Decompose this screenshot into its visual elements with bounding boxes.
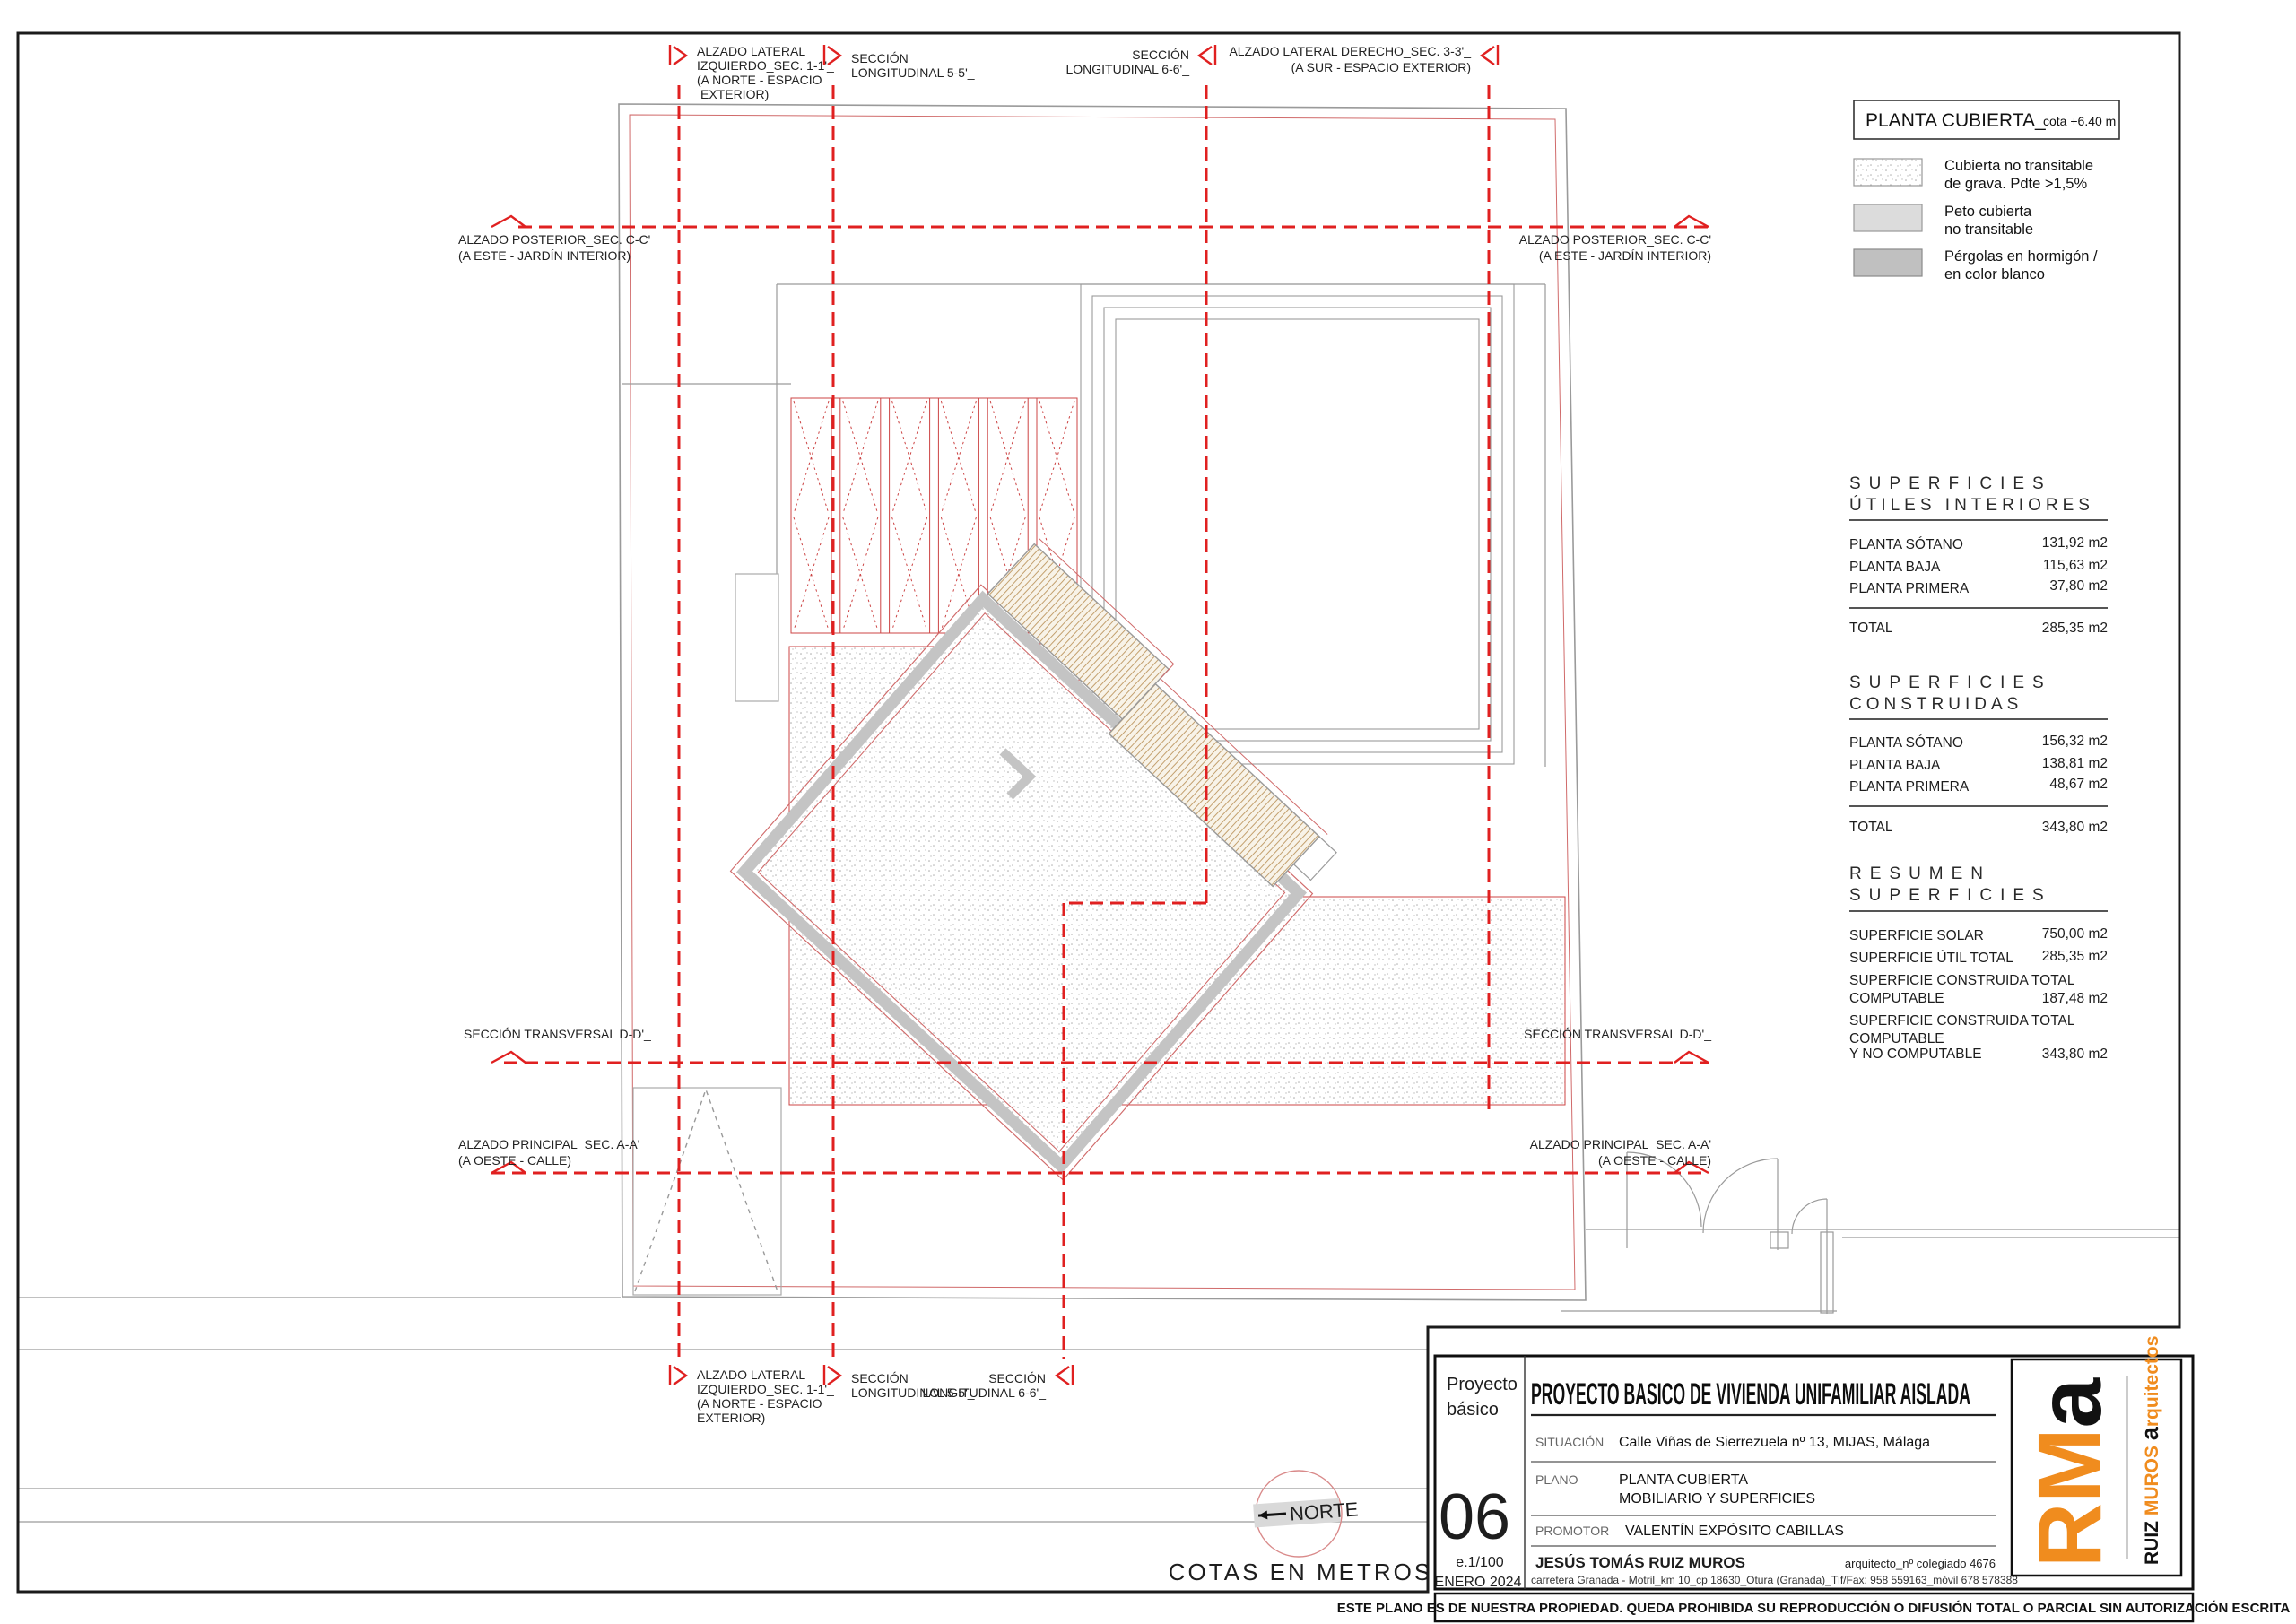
roof-plan-sheet: ALZADO LATERAL IZQUIERDO_SEC. 1-1'_ (A N… <box>0 0 2296 1624</box>
plano-value-1: PLANTA CUBIERTA <box>1619 1472 1748 1488</box>
legend-title: PLANTA CUBIERTA_ <box>1865 110 2046 131</box>
situacion-value: Calle Viñas de Sierrezuela nº 13, MIJAS,… <box>1619 1435 1930 1450</box>
svg-text:TOTAL: TOTAL <box>1849 621 1893 636</box>
svg-text:PLANTA PRIMERA: PLANTA PRIMERA <box>1849 581 1970 596</box>
label-posterior-left: ALZADO POSTERIOR_SEC. C-C' <box>458 232 650 247</box>
sheet-scale: e.1/100 <box>1456 1555 1503 1570</box>
table-superficies-construidas: SUPERFICIES CONSTRUIDAS PLANTA SÓTANO 15… <box>1849 673 2108 835</box>
architect-address: carretera Granada - Motril_km 10_cp 1863… <box>1531 1574 2018 1586</box>
svg-text:SUPERFICIES: SUPERFICIES <box>1849 673 2052 692</box>
svg-text:285,35 m2: 285,35 m2 <box>2042 949 2108 964</box>
svg-text:CONSTRUIDAS: CONSTRUIDAS <box>1849 695 2022 714</box>
svg-text:37,80 m2: 37,80 m2 <box>2049 578 2108 594</box>
architect-name: JESÚS TOMÁS RUIZ MUROS <box>1535 1554 1745 1571</box>
svg-text:131,92 m2: 131,92 m2 <box>2042 535 2108 551</box>
svg-text:115,63 m2: 115,63 m2 <box>2043 558 2108 573</box>
svg-text:Cubierta no transitable: Cubierta no transitable <box>1944 158 2093 174</box>
label-long6-top: SECCIÓN <box>1132 48 1189 62</box>
svg-text:187,48 m2: 187,48 m2 <box>2042 991 2108 1006</box>
architect-number: arquitecto_nº colegiado 4676 <box>1845 1557 1996 1570</box>
label-lateral-izq-top: ALZADO LATERAL <box>697 44 805 58</box>
svg-text:48,67 m2: 48,67 m2 <box>2049 777 2108 792</box>
svg-text:SUPERFICIE SOLAR: SUPERFICIE SOLAR <box>1849 928 1984 943</box>
legend: PLANTA CUBIERTA_ cota +6.40 m Cubierta n… <box>1854 100 2119 282</box>
project-type-line1: Proyecto <box>1447 1375 1518 1394</box>
svg-text:(A SUR - ESPACIO EXTERIOR): (A SUR - ESPACIO EXTERIOR) <box>1291 60 1471 74</box>
plano-label: PLANO <box>1535 1472 1578 1487</box>
svg-text:ÚTILES INTERIORES: ÚTILES INTERIORES <box>1849 495 2094 515</box>
plan-canvas: ALZADO LATERAL IZQUIERDO_SEC. 1-1'_ (A N… <box>0 0 2296 1624</box>
svg-text:156,32 m2: 156,32 m2 <box>2042 734 2108 749</box>
svg-text:750,00 m2: 750,00 m2 <box>2042 926 2108 942</box>
label-principal-left: ALZADO PRINCIPAL_SEC. A-A' <box>458 1137 639 1151</box>
label-long6-bottom: SECCIÓN <box>988 1371 1046 1385</box>
label-lateral-izq-bottom: ALZADO LATERAL <box>697 1368 805 1382</box>
svg-text:(A ESTE - JARDÍN INTERIOR): (A ESTE - JARDÍN INTERIOR) <box>1539 248 1711 263</box>
svg-text:PLANTA SÓTANO: PLANTA SÓTANO <box>1849 537 1963 552</box>
copyright-text: ESTE PLANO ES DE NUESTRA PROPIEDAD. QUED… <box>1337 1600 2291 1616</box>
svg-text:PLANTA BAJA: PLANTA BAJA <box>1849 758 1941 773</box>
north-label: NORTE <box>1289 1498 1359 1524</box>
label-lateral-der-top: ALZADO LATERAL DERECHO_SEC. 3-3'_ <box>1229 44 1471 58</box>
title-block: Proyecto básico 06 e.1/100 ENERO 2024 PR… <box>1337 1336 2291 1621</box>
skylight <box>735 574 778 701</box>
svg-text:TOTAL: TOTAL <box>1849 820 1893 835</box>
project-type-line2: básico <box>1447 1400 1499 1420</box>
logo-rm: RM <box>2020 1428 2120 1568</box>
ramp <box>633 1088 781 1295</box>
north-compass: NORTE <box>1253 1471 1359 1557</box>
legend-subtitle: cota +6.40 m <box>2043 114 2116 128</box>
svg-text:343,80 m2: 343,80 m2 <box>2042 820 2108 835</box>
entrance-gates <box>1627 1152 1833 1314</box>
svg-text:SUPERFICIE ÚTIL TOTAL: SUPERFICIE ÚTIL TOTAL <box>1849 951 2013 966</box>
svg-text:en color blanco: en color blanco <box>1944 266 2045 282</box>
situacion-label: SITUACIÓN <box>1535 1435 1604 1449</box>
svg-text:SUPERFICIE CONSTRUIDA TOTAL: SUPERFICIE CONSTRUIDA TOTAL <box>1849 973 2075 988</box>
studio-logo: RMa RUIZ MUROS arquitectos <box>2012 1336 2181 1576</box>
svg-text:IZQUIERDO_SEC. 1-1'_: IZQUIERDO_SEC. 1-1'_ <box>697 1382 834 1396</box>
svg-text:de grava. Pdte >1,5%: de grava. Pdte >1,5% <box>1944 176 2087 192</box>
svg-text:RMa: RMa <box>2020 1376 2120 1568</box>
svg-text:PLANTA SÓTANO: PLANTA SÓTANO <box>1849 735 1963 751</box>
plano-value-2: MOBILIARIO Y SUPERFICIES <box>1619 1491 1815 1507</box>
sheet-date: ENERO 2024 <box>1435 1575 1522 1590</box>
svg-text:Y NO COMPUTABLE: Y NO COMPUTABLE <box>1849 1046 1982 1062</box>
legend-swatch-pergola <box>1854 249 1922 276</box>
svg-text:PLANTA BAJA: PLANTA BAJA <box>1849 560 1941 575</box>
label-long5-top: SECCIÓN <box>851 51 909 65</box>
svg-text:Pérgolas en hormigón /: Pérgolas en hormigón / <box>1944 248 2098 265</box>
label-transversal-left: SECCIÓN TRANSVERSAL D-D'_ <box>464 1027 651 1041</box>
table-superficies-utiles: SUPERFICIES ÚTILES INTERIORES PLANTA SÓT… <box>1849 474 2108 636</box>
svg-text:COMPUTABLE: COMPUTABLE <box>1849 1031 1944 1046</box>
svg-text:(A OESTE - CALLE): (A OESTE - CALLE) <box>1598 1153 1711 1168</box>
svg-text:IZQUIERDO_SEC. 1-1'_: IZQUIERDO_SEC. 1-1'_ <box>697 58 834 73</box>
table-resumen-superficies: RESUMEN SUPERFICIES SUPERFICIE SOLAR 750… <box>1849 864 2108 1062</box>
svg-text:343,80 m2: 343,80 m2 <box>2042 1046 2108 1062</box>
svg-text:EXTERIOR): EXTERIOR) <box>700 87 769 101</box>
svg-text:SUPERFICIE CONSTRUIDA TOTAL: SUPERFICIE CONSTRUIDA TOTAL <box>1849 1013 2075 1029</box>
label-principal-right: ALZADO PRINCIPAL_SEC. A-A' <box>1530 1137 1711 1151</box>
svg-text:LONGITUDINAL 6-6'_: LONGITUDINAL 6-6'_ <box>1065 62 1189 76</box>
sheet-number: 06 <box>1439 1481 1510 1553</box>
svg-text:SUPERFICIES: SUPERFICIES <box>1849 886 2052 905</box>
svg-text:285,35 m2: 285,35 m2 <box>2042 621 2108 636</box>
svg-text:138,81 m2: 138,81 m2 <box>2042 756 2108 771</box>
svg-text:EXTERIOR): EXTERIOR) <box>697 1411 765 1425</box>
label-transversal-right: SECCIÓN TRANSVERSAL D-D'_ <box>1524 1027 1711 1041</box>
svg-text:(A OESTE - CALLE): (A OESTE - CALLE) <box>458 1153 571 1168</box>
svg-text:(A NORTE - ESPACIO: (A NORTE - ESPACIO <box>697 73 822 87</box>
svg-text:(A NORTE - ESPACIO: (A NORTE - ESPACIO <box>697 1396 822 1411</box>
legend-swatch-gravel <box>1854 159 1922 186</box>
promotor-label: PROMOTOR <box>1535 1524 1609 1538</box>
svg-text:LONGITUDINAL 6-6'_: LONGITUDINAL 6-6'_ <box>922 1385 1046 1400</box>
svg-text:no transitable: no transitable <box>1944 221 2033 238</box>
svg-text:PLANTA PRIMERA: PLANTA PRIMERA <box>1849 779 1970 795</box>
logo-a: a <box>2020 1376 2120 1428</box>
legend-swatch-peto <box>1854 204 1922 231</box>
label-long5-bottom: SECCIÓN <box>851 1371 909 1385</box>
project-title: PROYECTO BASICO DE VIVIENDA UNIFAMILIAR … <box>1531 1377 1970 1411</box>
svg-text:Peto cubierta: Peto cubierta <box>1944 204 2032 220</box>
svg-text:COMPUTABLE: COMPUTABLE <box>1849 991 1944 1006</box>
svg-text:SUPERFICIES: SUPERFICIES <box>1849 474 2052 493</box>
svg-text:LONGITUDINAL 5-5'_: LONGITUDINAL 5-5'_ <box>851 65 975 80</box>
promotor-value: VALENTÍN EXPÓSITO CABILLAS <box>1625 1522 1844 1539</box>
svg-text:RESUMEN: RESUMEN <box>1849 864 1991 883</box>
svg-text:(A ESTE - JARDÍN INTERIOR): (A ESTE - JARDÍN INTERIOR) <box>458 248 631 263</box>
label-posterior-right: ALZADO POSTERIOR_SEC. C-C' <box>1519 232 1711 247</box>
cotas-note: COTAS EN METROS <box>1169 1559 1432 1585</box>
